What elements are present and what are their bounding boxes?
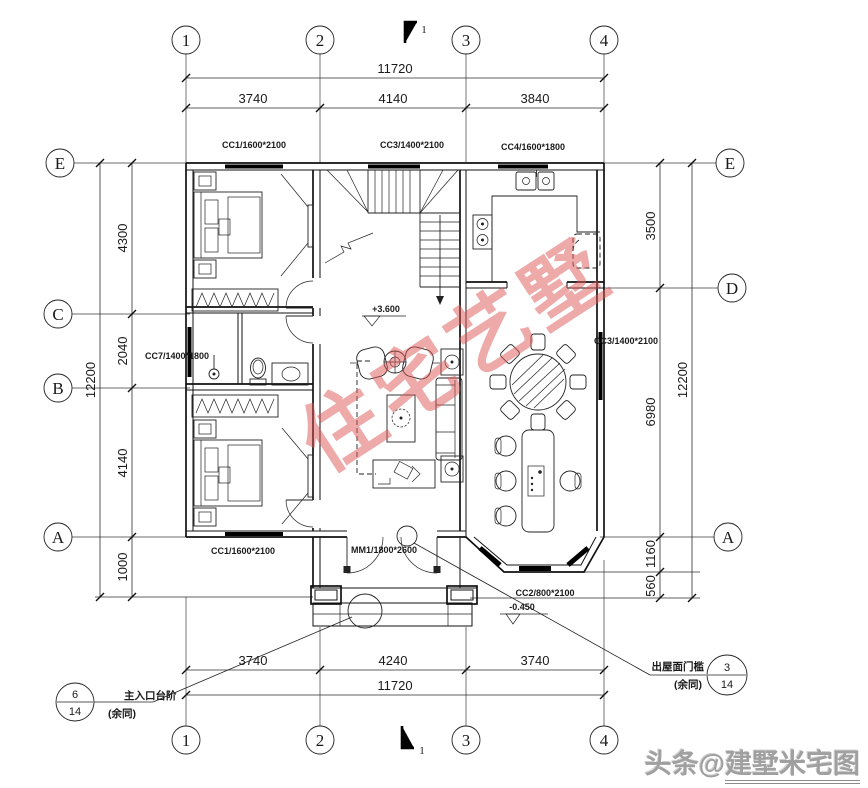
axis-col-4-top: 4: [600, 31, 609, 50]
nightstand-icon: [194, 172, 216, 278]
dim-top-2: 4140: [379, 91, 408, 106]
dim-right-3: 1160: [643, 540, 658, 568]
dim-bottom-3: 3740: [521, 653, 550, 668]
axis-col-2-top: 2: [316, 31, 325, 50]
door-swing: [286, 281, 313, 308]
section-mark-bottom: 1: [402, 726, 425, 757]
detail-den: 14: [69, 706, 81, 718]
detail-note: (余同): [674, 678, 702, 691]
detail-note: (余同): [108, 707, 136, 720]
coffee-table-icon: [387, 395, 415, 442]
axis-col-2-bottom: 2: [316, 731, 325, 750]
detail-label: 主入口台阶: [124, 689, 177, 702]
section-mark-top: 1: [405, 22, 427, 43]
door-swing: [286, 316, 313, 343]
dim-top-1: 3740: [239, 91, 268, 106]
sink-vanity-icon: [272, 363, 308, 385]
bed-icon: [194, 192, 262, 258]
level-floor-value: +3.600: [372, 304, 400, 314]
corner-watermark-suffix: 建墅米宅图: [725, 749, 860, 784]
axis-row-A-left: A: [52, 528, 65, 547]
tv-cabinet-icon: [373, 460, 435, 488]
axis-row-E-left: E: [55, 154, 65, 173]
floor-drain-icon: [209, 355, 219, 379]
nightstand-icon: [194, 420, 216, 526]
opening-labels: CC1/1600*2100 CC3/1400*2100 CC4/1600*180…: [145, 140, 658, 598]
dim-right-overall: 12200: [675, 362, 690, 398]
corner-watermark: 头条@建墅米宅图: [645, 742, 860, 781]
dim-left-1: 4300: [115, 224, 130, 253]
corner-watermark-prefix: 头条@: [645, 749, 725, 779]
label-cc1-bottom: CC1/1600*2100: [211, 546, 275, 556]
dining-table-icon: [510, 354, 566, 410]
side-table-icon: [384, 351, 406, 373]
axis-col-1-top: 1: [182, 31, 191, 50]
floor-plan-screenshot: 11720 3740 4140 3840 3740 4240 3740 1172…: [0, 0, 868, 788]
door-swing: [286, 500, 313, 527]
bed-icon: [194, 440, 262, 506]
dim-top-3: 3840: [521, 91, 550, 106]
floor-plan-drawing: 11720 3740 4140 3840 3740 4240 3740 1172…: [0, 0, 868, 788]
sofa-icon: [436, 378, 462, 460]
axis-row-E-right: E: [725, 154, 735, 173]
dim-bottom-2: 4240: [379, 653, 408, 668]
label-cc3-right: CC3/1400*2100: [594, 336, 658, 346]
axis-col-4-bottom: 4: [600, 731, 609, 750]
section-mark-top-number: 1: [421, 24, 427, 36]
label-cc2-bay: CC2/800*2100: [515, 588, 574, 598]
sink-icon: [516, 170, 554, 190]
detail-label: 出屋面门槛: [652, 660, 705, 673]
axis-row-D-right: D: [726, 279, 738, 298]
bedroom-bottom: [192, 395, 313, 527]
axis-col-1-bottom: 1: [182, 731, 191, 750]
detail-num: 3: [724, 662, 730, 674]
dim-left-4: 1000: [115, 553, 130, 582]
dim-right-1: 3500: [643, 212, 658, 241]
axis-row-A-right: A: [722, 528, 735, 547]
label-cc4-top: CC4/1600*1800: [501, 142, 565, 152]
dim-left-overall: 12200: [83, 362, 98, 398]
island-table-icon: [522, 430, 554, 532]
axis-col-3-bottom: 3: [462, 731, 471, 750]
dining-chairs: [490, 334, 586, 430]
entry-steps-detail: 6 14 主入口台阶 (余同): [56, 594, 382, 721]
staircase: [325, 170, 460, 305]
entry-double-door: [344, 537, 441, 573]
detail-num: 6: [72, 689, 78, 701]
label-cc1-top: CC1/1600*2100: [222, 140, 286, 150]
bathroom: [209, 316, 313, 385]
axis-col-3-top: 3: [462, 31, 471, 50]
dining-room: [490, 334, 586, 532]
detail-den: 14: [721, 679, 733, 691]
dim-bottom-overall: 11720: [377, 678, 412, 693]
level-mark-porch: -0.450: [500, 602, 548, 624]
axis-bubbles: 1 2 3 4 1 2 3 4 E C B A E D A: [44, 26, 746, 754]
fridge-icon: [573, 234, 600, 268]
stove-icon: [473, 215, 492, 249]
axis-row-C-left: C: [52, 305, 63, 324]
wardrobe-icon: [192, 395, 278, 417]
label-mm1-entry: MM1/1800*2600: [351, 545, 417, 555]
section-mark-bottom-number: 1: [419, 745, 425, 757]
label-cc3-top: CC3/1400*2100: [380, 140, 444, 150]
dim-left-2: 2040: [115, 337, 130, 366]
walls: [186, 163, 604, 626]
dim-top-overall: 11720: [377, 61, 412, 76]
dim-left-3: 4140: [115, 449, 130, 478]
kitchen: [473, 170, 600, 282]
label-cc7-left: CC7/1400*1800: [145, 351, 209, 361]
dim-right-4: 560: [643, 575, 658, 597]
axis-grid-lines: [72, 54, 718, 726]
island-chairs: [495, 436, 581, 526]
level-mark-floor: +3.600: [362, 304, 406, 326]
dim-right-2: 6980: [643, 398, 658, 427]
bedroom-top: [192, 172, 313, 311]
living-room: [350, 345, 463, 488]
toilet-icon: [250, 358, 266, 385]
axis-row-B-left: B: [52, 379, 63, 398]
